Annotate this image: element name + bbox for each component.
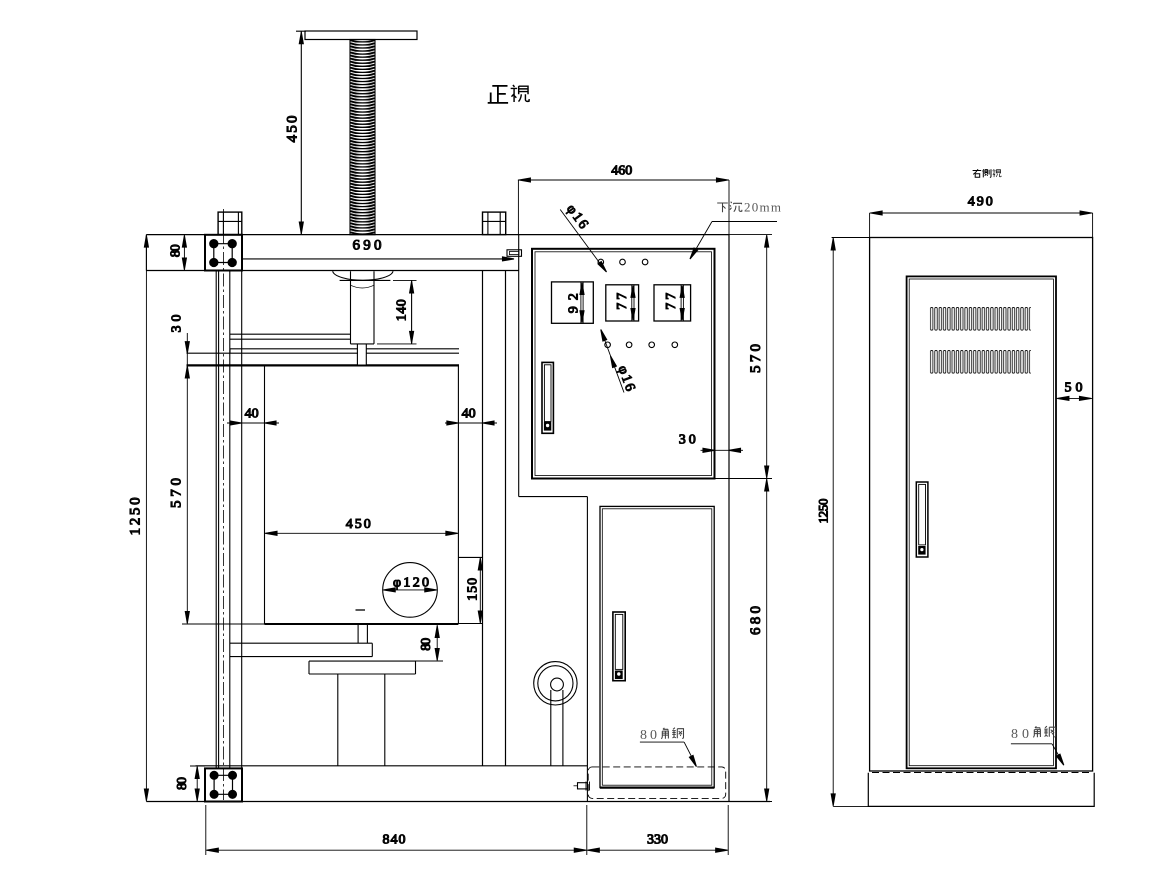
svg-text:40: 40 bbox=[245, 407, 259, 422]
svg-text:840: 840 bbox=[383, 833, 406, 848]
svg-text:140: 140 bbox=[395, 299, 410, 321]
svg-text:80: 80 bbox=[175, 777, 190, 790]
svg-text:690: 690 bbox=[353, 238, 382, 254]
svg-text:450: 450 bbox=[285, 116, 301, 143]
svg-text:460: 460 bbox=[611, 164, 632, 179]
svg-text:570: 570 bbox=[748, 344, 764, 373]
svg-text:330: 330 bbox=[647, 833, 668, 848]
svg-text:1250: 1250 bbox=[816, 499, 831, 524]
svg-text:490: 490 bbox=[968, 195, 993, 210]
svg-text:80: 80 bbox=[419, 638, 434, 651]
svg-text:80: 80 bbox=[169, 244, 184, 257]
svg-text:680: 680 bbox=[748, 606, 764, 635]
svg-text:20mm: 20mm bbox=[744, 200, 781, 215]
svg-text:40: 40 bbox=[462, 407, 476, 422]
svg-text:570: 570 bbox=[169, 478, 185, 508]
svg-text:450: 450 bbox=[346, 517, 371, 532]
svg-text:150: 150 bbox=[466, 578, 481, 601]
